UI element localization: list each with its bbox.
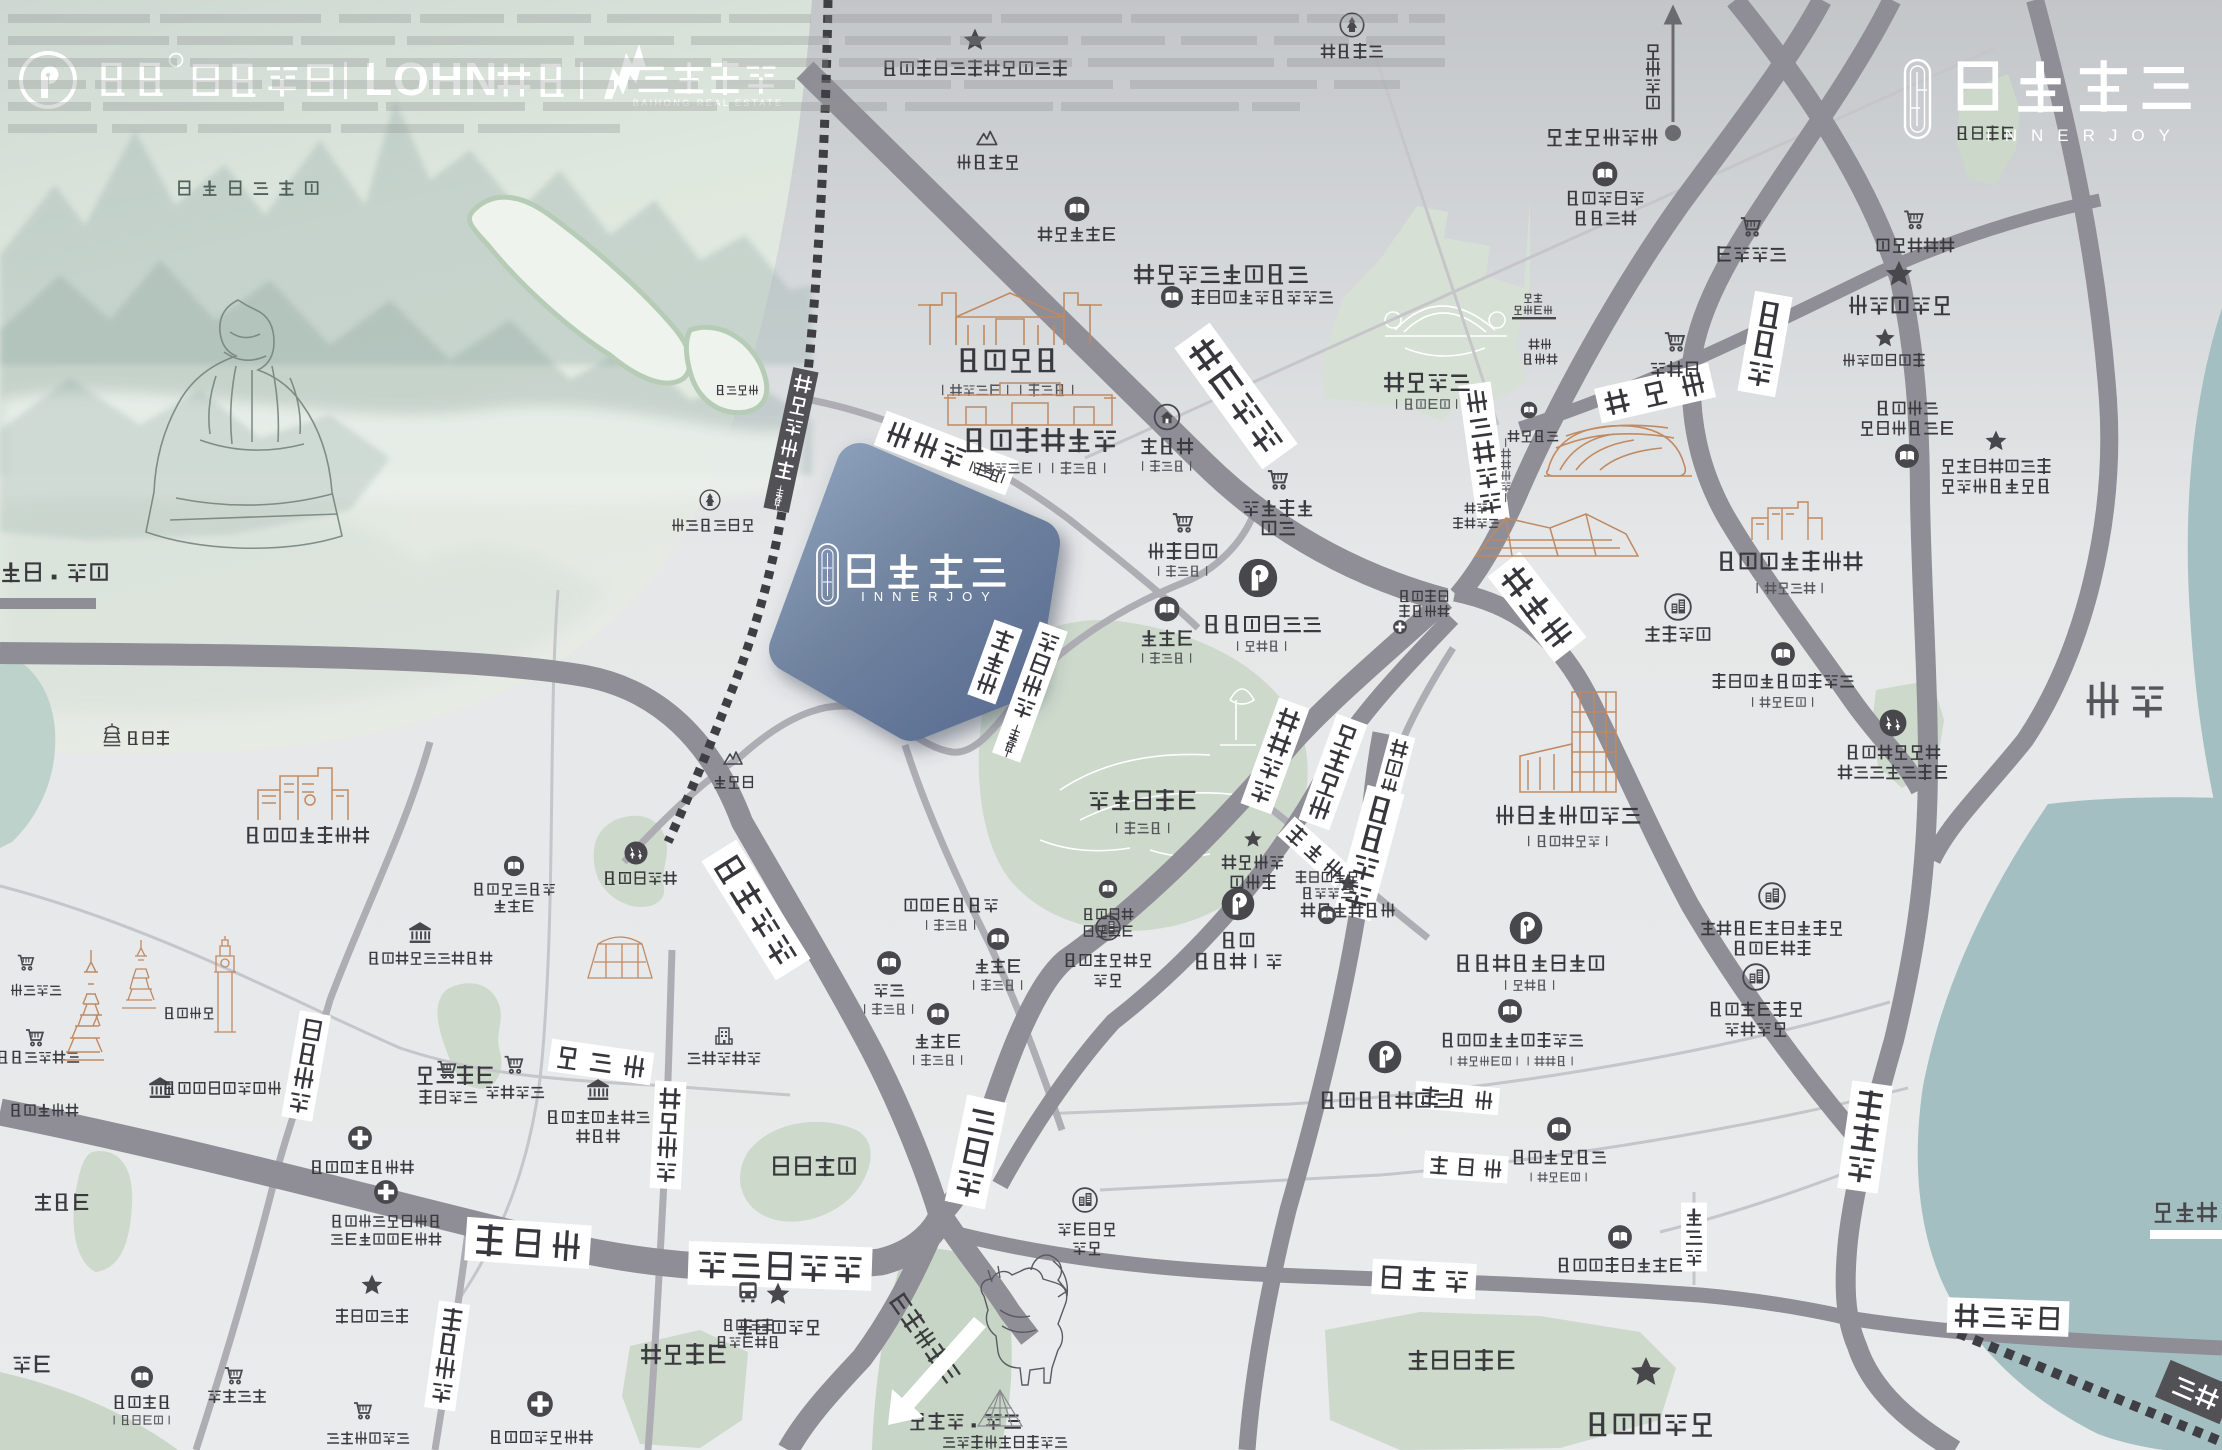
svg-text:INNERJOY: INNERJOY [861, 589, 999, 604]
svg-text:INNERJOY: INNERJOY [1986, 126, 2184, 145]
